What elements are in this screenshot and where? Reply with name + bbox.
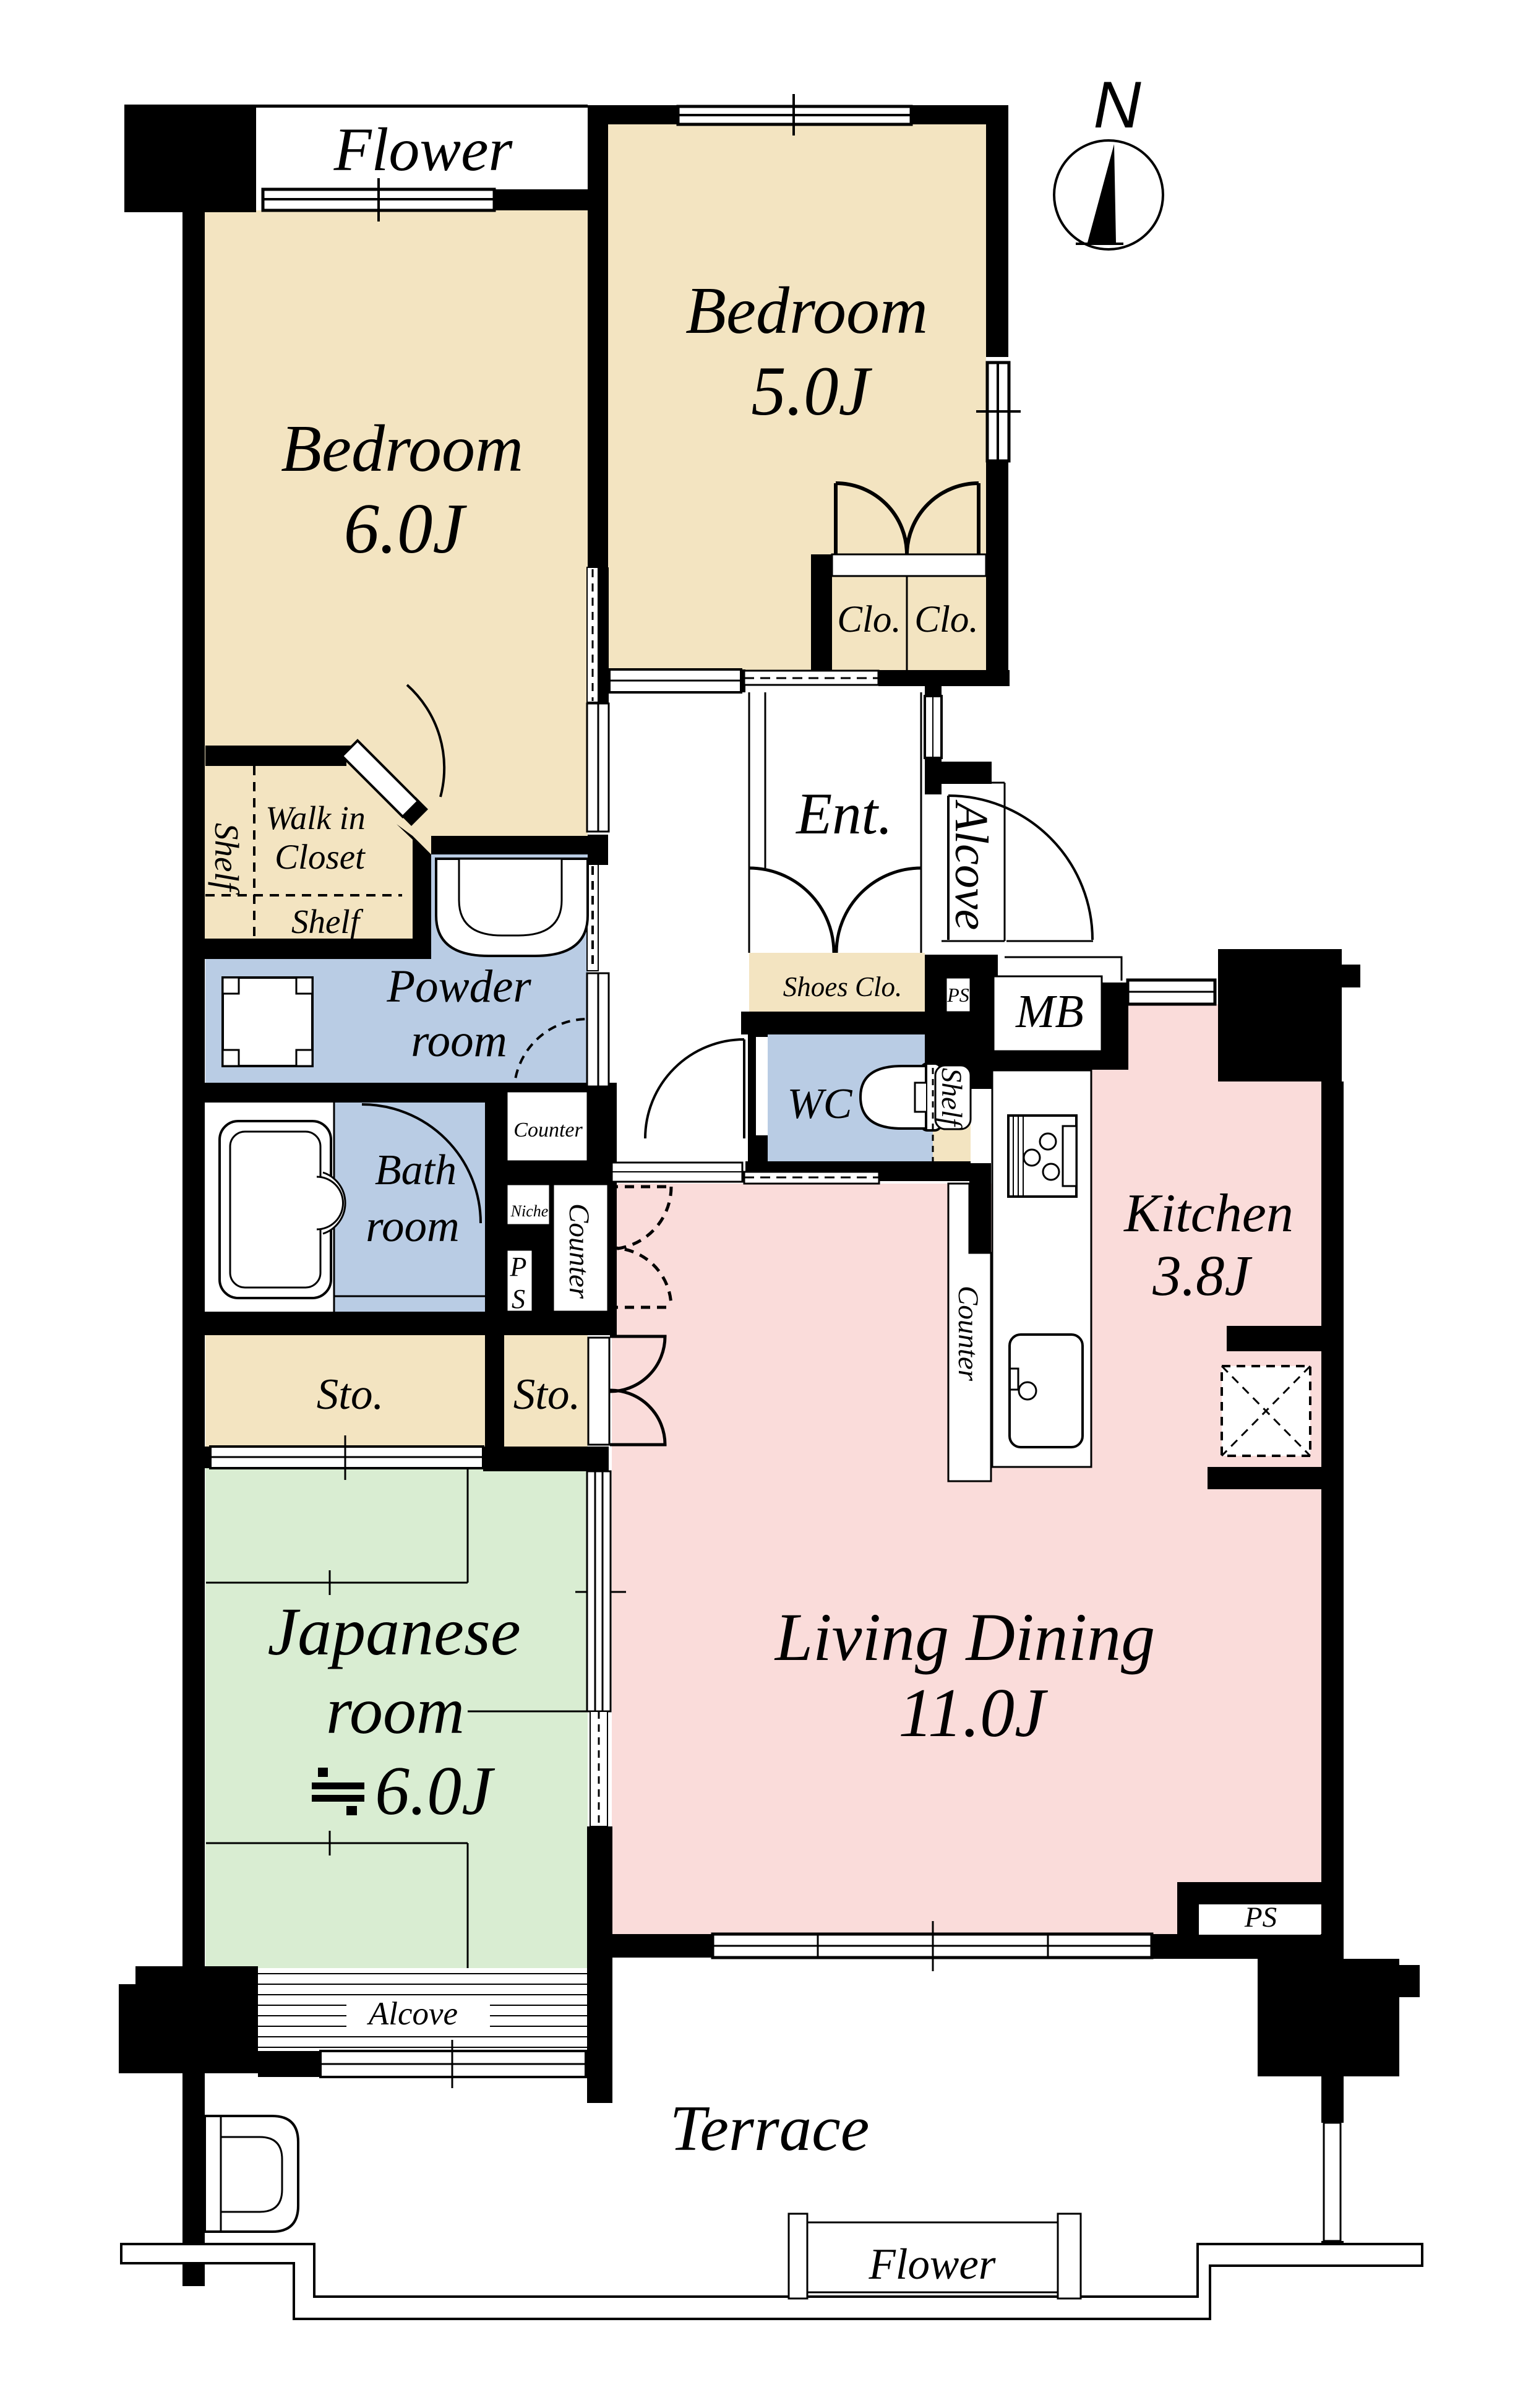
svg-text:room: room [366,1201,459,1251]
svg-text:Shelf: Shelf [935,1068,968,1130]
svg-text:Living Dining: Living Dining [774,1599,1155,1675]
svg-text:PS: PS [1244,1901,1277,1933]
svg-text:Terrace: Terrace [670,2092,870,2164]
svg-text:PS: PS [946,984,969,1006]
svg-text:Alcove: Alcove [945,799,997,931]
svg-text:Flower: Flower [868,2240,995,2289]
svg-text:Bath: Bath [375,1146,457,1194]
svg-text:Shelf: Shelf [208,823,246,895]
svg-text:Counter: Counter [563,1203,595,1299]
svg-text:Ent.: Ent. [795,781,893,846]
svg-text:MB: MB [1015,986,1084,1038]
svg-text:Sto.: Sto. [513,1370,580,1419]
svg-text:Clo.: Clo. [914,599,978,640]
svg-text:Clo.: Clo. [837,599,901,640]
svg-text:Shoes Clo.: Shoes Clo. [783,971,903,1002]
svg-text:Kitchen: Kitchen [1123,1184,1294,1244]
svg-text:6.0J: 6.0J [375,1753,496,1830]
svg-text:room: room [411,1015,507,1067]
svg-text:Walk in: Walk in [265,799,366,836]
svg-text:Niche: Niche [510,1202,549,1220]
svg-text:11.0J: 11.0J [898,1675,1049,1752]
svg-text:5.0J: 5.0J [751,353,872,430]
svg-text:Bedroom: Bedroom [685,274,928,348]
svg-text:Counter: Counter [952,1286,984,1382]
svg-text:Counter: Counter [513,1119,583,1142]
svg-text:Bedroom: Bedroom [281,412,523,486]
svg-text:Sto.: Sto. [317,1370,384,1419]
svg-text:Powder: Powder [386,961,531,1012]
svg-text:S: S [512,1284,525,1314]
svg-text:P: P [510,1252,527,1282]
svg-text:room: room [326,1674,465,1748]
svg-text:3.8J: 3.8J [1152,1244,1252,1308]
svg-text:Closet: Closet [275,838,366,877]
svg-text:N: N [1093,67,1141,142]
svg-text:WC: WC [787,1080,853,1128]
svg-text:6.0J: 6.0J [344,489,468,568]
svg-text:Shelf: Shelf [291,903,364,940]
svg-text:Flower: Flower [333,115,513,184]
svg-text:Japanese: Japanese [267,1594,520,1669]
svg-text:Alcove: Alcove [367,1996,458,2032]
